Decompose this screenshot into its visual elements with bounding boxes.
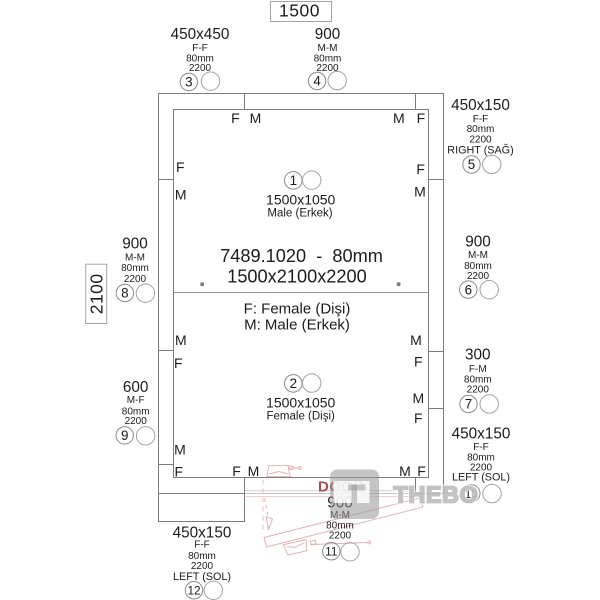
svg-text:1500x1050: 1500x1050 — [266, 191, 336, 207]
svg-text:M-M: M-M — [468, 250, 488, 261]
svg-text:1: 1 — [290, 173, 297, 188]
svg-text:F: F — [176, 159, 185, 175]
svg-text:450x150: 450x150 — [451, 97, 510, 114]
svg-text:9: 9 — [121, 428, 128, 443]
svg-text:1500x2100x2200: 1500x2100x2200 — [227, 266, 367, 286]
svg-text:M: M — [414, 184, 426, 200]
svg-text:RIGHT (SAĞ): RIGHT (SAĞ) — [447, 144, 513, 157]
svg-text:8: 8 — [121, 286, 128, 301]
svg-text:M: M — [248, 463, 260, 479]
svg-text:F: F — [232, 463, 241, 479]
svg-text:450x150: 450x150 — [452, 425, 511, 442]
svg-text:F: F — [231, 110, 240, 126]
svg-text:2100: 2100 — [86, 273, 106, 314]
svg-text:M: M — [412, 390, 424, 406]
svg-text:900: 900 — [122, 236, 148, 253]
svg-text:7: 7 — [465, 397, 472, 412]
svg-text:2200: 2200 — [125, 416, 148, 427]
svg-text:12: 12 — [187, 584, 200, 598]
svg-text:3: 3 — [185, 75, 192, 90]
svg-text:450x450: 450x450 — [171, 26, 230, 43]
svg-text:M-F: M-F — [127, 395, 145, 406]
svg-text:M-M: M-M — [125, 252, 145, 263]
svg-text:2200: 2200 — [467, 271, 490, 282]
svg-text:M: Male (Erkek): M: Male (Erkek) — [244, 316, 350, 333]
svg-text:F-F: F-F — [194, 540, 210, 551]
svg-text:2200: 2200 — [467, 385, 490, 396]
svg-text:900: 900 — [315, 26, 341, 43]
svg-text:2200: 2200 — [124, 274, 147, 285]
svg-text:600: 600 — [123, 379, 149, 396]
svg-text:M: M — [393, 110, 405, 126]
svg-text:F: F — [416, 161, 425, 177]
svg-text:7489.1020 - 80mm: 7489.1020 - 80mm — [220, 246, 383, 266]
svg-text:F: F — [417, 110, 426, 126]
svg-text:Female (Dişi): Female (Dişi) — [267, 411, 336, 423]
svg-text:F: Female (Dişi): F: Female (Dişi) — [244, 300, 351, 317]
svg-text:900: 900 — [465, 233, 491, 250]
svg-text:M-M: M-M — [318, 43, 338, 54]
svg-text:80mm: 80mm — [121, 263, 149, 274]
svg-text:M: M — [410, 332, 422, 348]
svg-text:THEBO: THEBO — [394, 482, 479, 508]
svg-text:11: 11 — [325, 545, 337, 559]
svg-text:F: F — [174, 355, 183, 371]
svg-text:M: M — [250, 110, 262, 126]
svg-text:5: 5 — [468, 157, 475, 172]
svg-text:F-F: F-F — [192, 43, 208, 54]
svg-text:F: F — [417, 463, 426, 479]
svg-text:6: 6 — [465, 282, 472, 297]
svg-text:M: M — [174, 441, 186, 457]
svg-text:2200: 2200 — [316, 63, 339, 74]
svg-text:300: 300 — [465, 347, 491, 364]
svg-text:M: M — [399, 463, 411, 479]
svg-text:4: 4 — [313, 74, 321, 89]
svg-text:1500: 1500 — [279, 1, 320, 21]
svg-text:F-M: F-M — [469, 364, 487, 375]
svg-text:Male (Erkek): Male (Erkek) — [267, 207, 332, 219]
svg-text:M: M — [175, 332, 187, 348]
svg-text:2: 2 — [290, 376, 297, 391]
svg-text:M: M — [175, 187, 187, 203]
svg-text:F: F — [414, 410, 423, 426]
svg-text:F: F — [414, 353, 423, 369]
svg-text:F: F — [175, 463, 184, 479]
svg-text:1500x1050: 1500x1050 — [266, 394, 336, 410]
svg-text:F-F: F-F — [473, 442, 489, 453]
svg-text:2200: 2200 — [329, 530, 352, 541]
svg-text:LEFT (SOL): LEFT (SOL) — [173, 571, 231, 583]
